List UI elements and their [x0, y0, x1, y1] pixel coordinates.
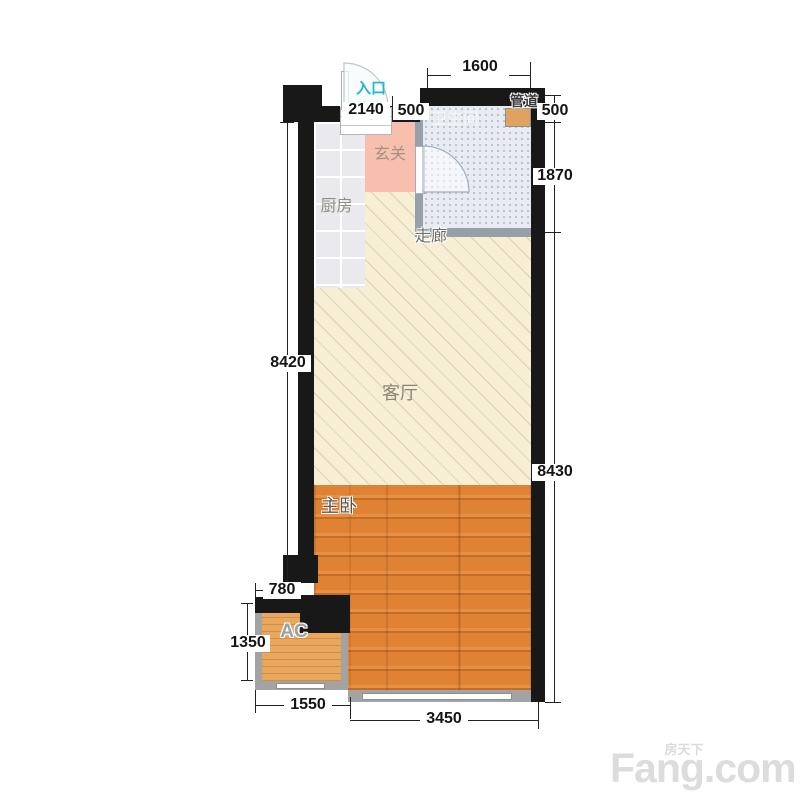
dim-1600-tick-right [530, 62, 531, 88]
dim-8420-text: 8420 [265, 355, 311, 372]
dim-1600-tick-left [427, 68, 428, 88]
bathroom-door-leaf [415, 146, 425, 194]
dim-500-top-text: 500 [393, 103, 429, 120]
dim-left-vline [287, 122, 288, 583]
dim-1350-tick-bottom [241, 680, 253, 681]
ac-wall-right [341, 633, 348, 690]
living-room-label: 客厅 [375, 384, 425, 403]
left-wall [298, 122, 314, 555]
dim-1550-tick-right [350, 697, 351, 719]
dim-3450-tick-right [538, 702, 539, 729]
dim-right-tick-2 [545, 122, 561, 123]
floor-plan-canvas: 入口 厨房 玄关 卫生间 管道 走廊 客厅 主卧 AC 1600 2140 50… [0, 0, 800, 800]
ac-window [276, 683, 325, 689]
bedroom-label: 主卧 [314, 497, 364, 516]
ac-top-wall [255, 597, 300, 613]
dim-1550-tick-left [255, 690, 256, 713]
dim-2140-text: 2140 [342, 102, 390, 119]
dim-780-tick [255, 583, 256, 597]
duct-box [505, 108, 531, 127]
dim-1870-text: 1870 [533, 168, 577, 185]
bathroom-label: 卫生间 [427, 112, 483, 129]
kitchen-label: 厨房 [311, 199, 362, 216]
dim-right-tick-4 [545, 702, 561, 703]
dim-1550-text: 1550 [284, 697, 332, 714]
entry-label: 入口 [346, 81, 396, 97]
dim-1600-text: 1600 [451, 59, 509, 76]
dim-8430-text: 8430 [532, 464, 578, 481]
dim-3450-text: 3450 [420, 711, 468, 728]
watermark-logo: Fang.com [610, 748, 800, 789]
dim-right-tick-1 [545, 95, 561, 96]
entry-wall-left-segment [322, 106, 340, 122]
dim-left-tick-top [280, 122, 294, 123]
dim-right-tick-3 [545, 232, 561, 233]
pillar-top-left [283, 85, 322, 122]
dim-1350-tick-top [241, 603, 253, 604]
bedroom-window [362, 693, 512, 700]
dim-780-text: 780 [263, 582, 301, 599]
dim-500-right-text: 500 [537, 103, 573, 120]
corridor-label: 走廊 [406, 229, 456, 246]
foyer-label: 玄关 [365, 147, 415, 164]
ac-pillar [283, 555, 318, 583]
ac-label: AC [274, 622, 314, 642]
dim-1350-text: 1350 [226, 635, 270, 652]
